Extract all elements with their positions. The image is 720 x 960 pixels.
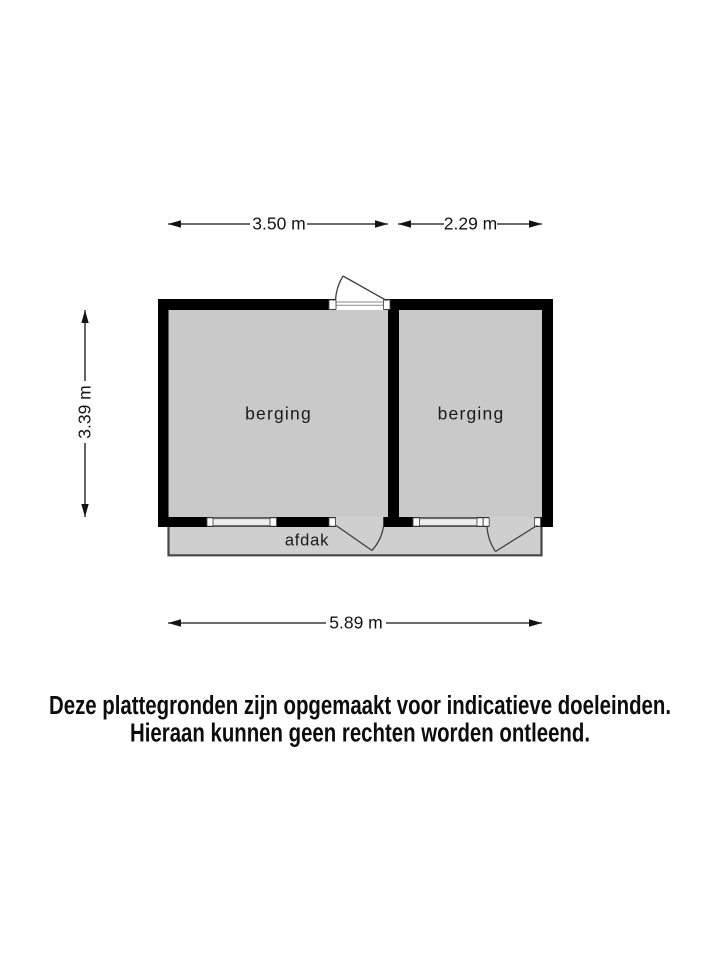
dimension-left: 3.39 m bbox=[75, 310, 95, 517]
dimension-label: 2.29 m bbox=[444, 214, 498, 234]
door-jamb-marker bbox=[329, 300, 336, 309]
window-left-room bbox=[207, 518, 277, 527]
arrow-down-icon bbox=[81, 504, 88, 517]
door-opening bbox=[489, 517, 535, 527]
room-label-left: berging bbox=[245, 404, 312, 424]
dimension-label: 5.89 m bbox=[329, 613, 383, 633]
window-jamb-marker bbox=[207, 518, 213, 526]
door-opening bbox=[336, 517, 384, 527]
disclaimer-line-1: Deze plattegronden zijn opgemaakt voor i… bbox=[49, 691, 671, 720]
dimension-top-right: 2.29 m bbox=[398, 214, 542, 234]
door-jamb-marker bbox=[483, 518, 489, 526]
arrow-right-icon bbox=[529, 220, 542, 227]
door-jamb-marker bbox=[384, 300, 391, 309]
arrow-left-icon bbox=[398, 220, 411, 227]
canopy-floor bbox=[168, 527, 543, 557]
arrow-right-icon bbox=[529, 619, 542, 626]
arrow-left-icon bbox=[168, 619, 181, 626]
arrow-right-icon bbox=[375, 220, 388, 227]
dimension-top-left: 3.50 m bbox=[168, 214, 388, 234]
door-opening bbox=[336, 299, 384, 310]
floorplan-page: 3.50 m 2.29 m 3.39 m 5.89 m bbox=[0, 0, 720, 960]
window-jamb-marker bbox=[477, 518, 483, 526]
top-door bbox=[329, 276, 390, 310]
room-label-right: berging bbox=[438, 404, 505, 424]
dimension-bottom: 5.89 m bbox=[168, 613, 542, 633]
dimension-label: 3.50 m bbox=[252, 214, 306, 234]
window-jamb-marker bbox=[270, 518, 277, 526]
floorplan-drawing: 3.50 m 2.29 m 3.39 m 5.89 m bbox=[0, 0, 720, 960]
canopy-label: afdak bbox=[285, 532, 329, 550]
door-swing-arc bbox=[336, 276, 344, 301]
dimension-label: 3.39 m bbox=[75, 385, 95, 439]
window-right-room bbox=[413, 518, 483, 527]
door-leaf bbox=[343, 276, 387, 301]
door-jamb-marker bbox=[535, 518, 541, 526]
arrow-left-icon bbox=[168, 220, 181, 227]
arrow-up-icon bbox=[81, 310, 88, 323]
window-jamb-marker bbox=[413, 518, 420, 526]
canopy-area: afdak bbox=[168, 527, 543, 557]
door-jamb-marker bbox=[329, 518, 336, 526]
disclaimer-line-2: Hieraan kunnen geen rechten worden ontle… bbox=[130, 718, 590, 747]
